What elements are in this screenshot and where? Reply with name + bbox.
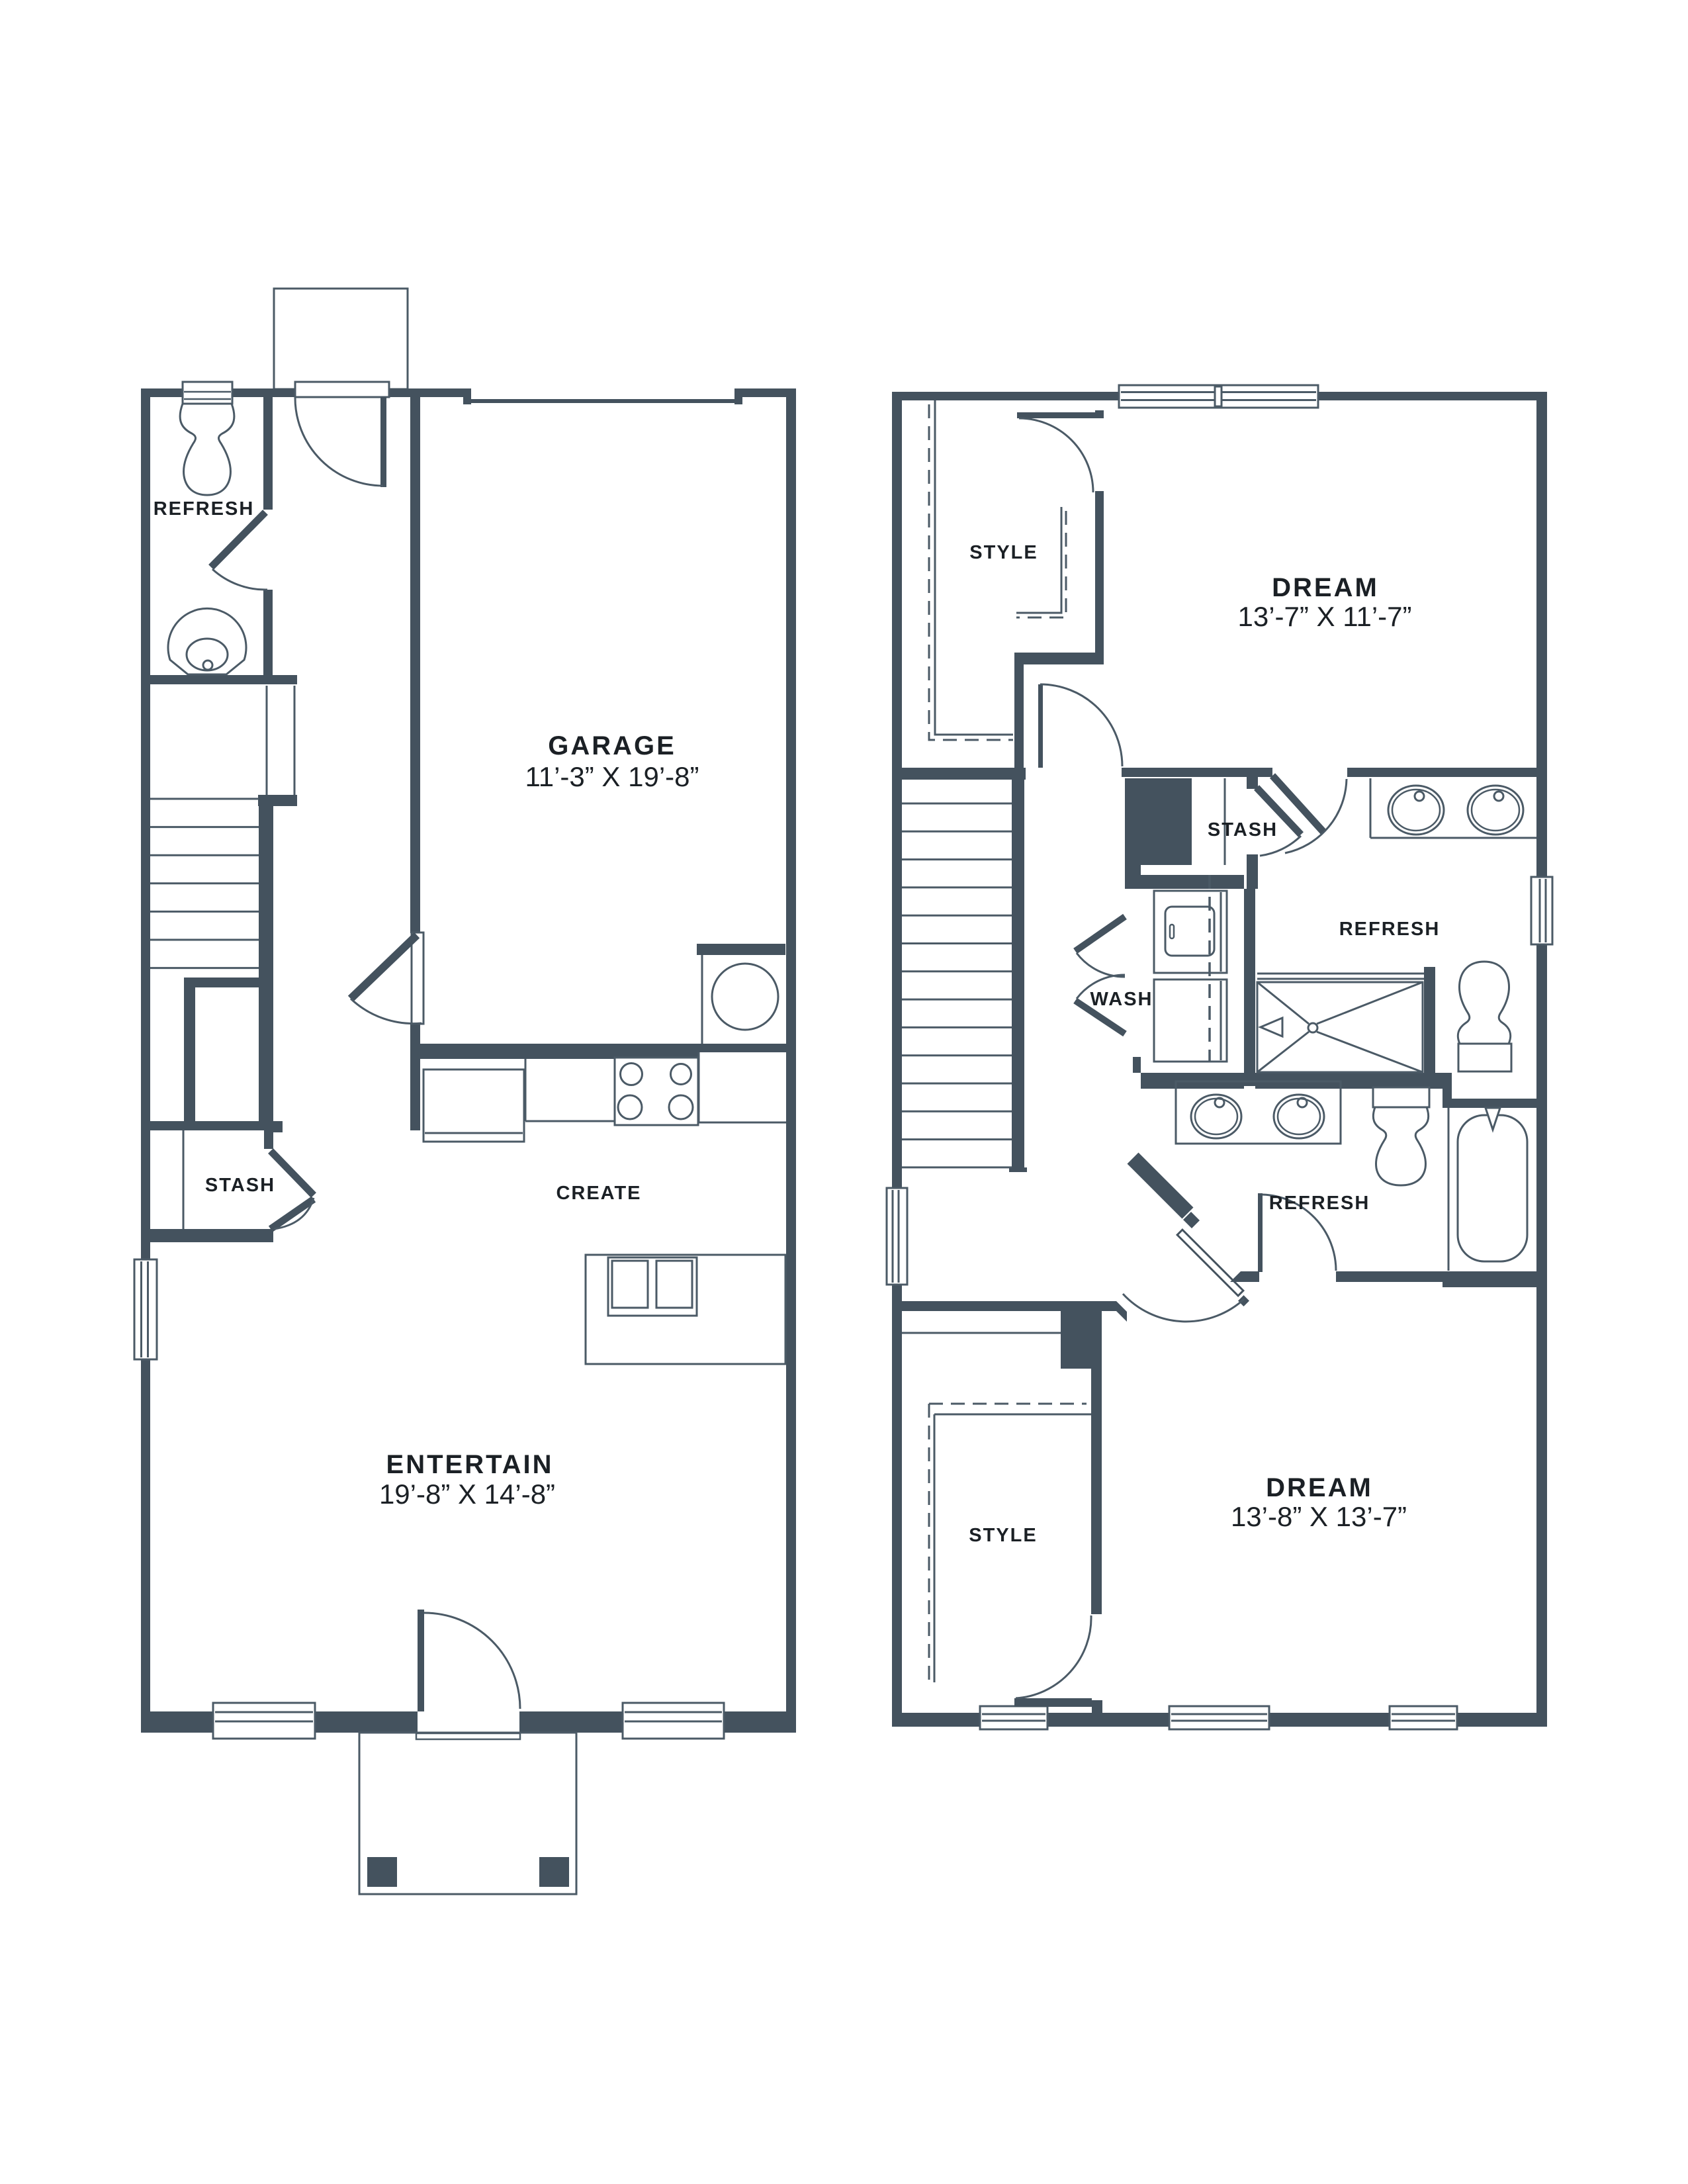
svg-text:STASH: STASH [205, 1175, 275, 1196]
svg-text:STYLE: STYLE [969, 1525, 1037, 1546]
svg-text:CREATE: CREATE [556, 1183, 641, 1204]
svg-text:REFRESH: REFRESH [1339, 919, 1441, 940]
svg-text:13’-8” X 13’-7”: 13’-8” X 13’-7” [1231, 1501, 1407, 1532]
svg-text:STASH: STASH [1208, 819, 1278, 841]
svg-text:GARAGE: GARAGE [548, 731, 676, 760]
svg-text:WASH: WASH [1090, 989, 1153, 1010]
svg-text:REFRESH: REFRESH [154, 498, 255, 520]
svg-text:REFRESH: REFRESH [1269, 1193, 1370, 1214]
svg-text:13’-7” X 11’-7”: 13’-7” X 11’-7” [1238, 601, 1412, 632]
svg-text:11’-3” X 19’-8”: 11’-3” X 19’-8” [525, 761, 699, 792]
svg-text:STYLE: STYLE [969, 542, 1038, 563]
svg-text:DREAM: DREAM [1272, 573, 1379, 602]
svg-text:19’-8” X 14’-8”: 19’-8” X 14’-8” [379, 1479, 555, 1510]
svg-text:DREAM: DREAM [1266, 1473, 1373, 1502]
svg-text:ENTERTAIN: ENTERTAIN [386, 1450, 554, 1479]
